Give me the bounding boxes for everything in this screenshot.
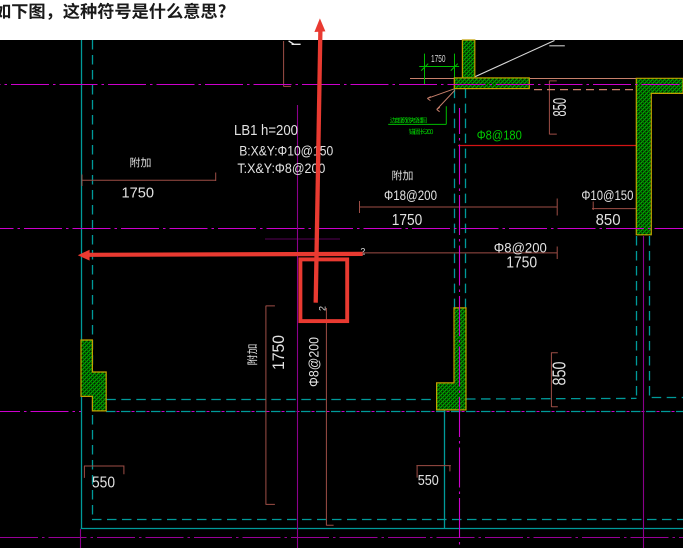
svg-text:1750: 1750 [431, 53, 446, 65]
svg-text:1750: 1750 [122, 184, 155, 201]
svg-text:Φ8@200: Φ8@200 [494, 241, 547, 256]
svg-text:T:X&Y:Φ8@200: T:X&Y:Φ8@200 [237, 161, 325, 176]
svg-text:Φ8@200: Φ8@200 [306, 337, 322, 387]
svg-text:1750: 1750 [392, 212, 423, 229]
svg-text:1750: 1750 [506, 255, 537, 272]
svg-text:Φ10@150: Φ10@150 [581, 188, 633, 203]
svg-text:550: 550 [418, 472, 439, 489]
svg-text:1750: 1750 [269, 335, 288, 370]
svg-text:850: 850 [596, 212, 621, 229]
svg-text:550: 550 [92, 474, 115, 491]
svg-text:Φ8@180: Φ8@180 [477, 128, 522, 142]
svg-text:850: 850 [550, 98, 570, 117]
svg-text:LB1 h=200: LB1 h=200 [234, 123, 298, 139]
svg-text:2: 2 [317, 306, 327, 311]
svg-text:850: 850 [550, 362, 570, 386]
svg-text:Φ18@200: Φ18@200 [384, 188, 437, 203]
